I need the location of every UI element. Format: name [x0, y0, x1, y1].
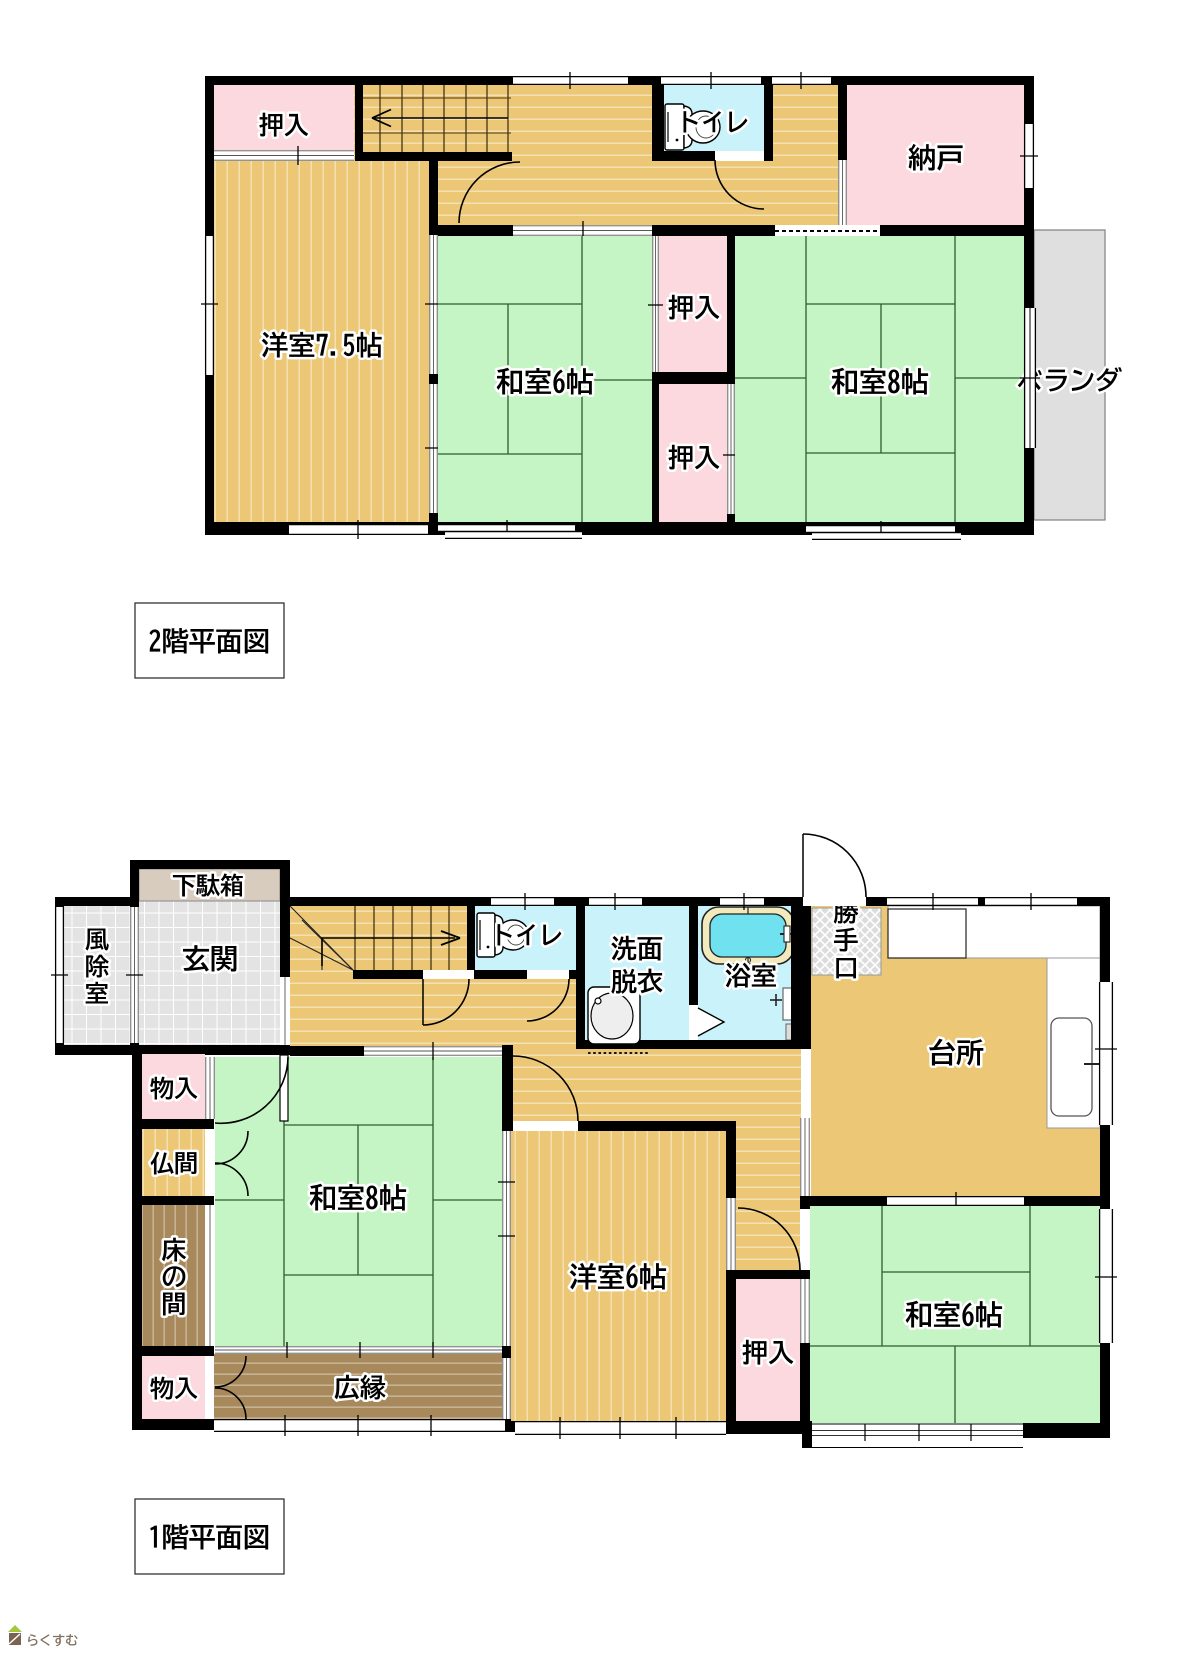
svg-text:トイレ: トイレ — [677, 110, 749, 134]
svg-text:広縁: 広縁 — [334, 1374, 386, 1401]
svg-text:押入: 押入 — [259, 112, 309, 138]
svg-text:洋室7.5帖: 洋室7.5帖 — [261, 331, 383, 359]
svg-text:物入: 物入 — [150, 1076, 198, 1100]
svg-text:1階平面図: 1階平面図 — [148, 1524, 270, 1551]
svg-text:トイレ: トイレ — [491, 923, 563, 947]
svg-text:手: 手 — [834, 927, 859, 953]
svg-text:洗面: 洗面 — [611, 935, 663, 962]
svg-text:室: 室 — [85, 981, 109, 1005]
svg-text:台所: 台所 — [928, 1038, 984, 1067]
svg-text:納戸: 納戸 — [908, 143, 964, 172]
svg-text:浴室: 浴室 — [725, 962, 777, 989]
svg-text:和室8帖: 和室8帖 — [831, 368, 929, 396]
svg-text:除: 除 — [85, 954, 109, 978]
svg-text:押入: 押入 — [668, 294, 720, 321]
svg-text:玄関: 玄関 — [182, 945, 238, 973]
svg-text:和室6帖: 和室6帖 — [905, 1301, 1003, 1329]
svg-text:2階平面図: 2階平面図 — [148, 628, 270, 655]
svg-text:間: 間 — [162, 1292, 187, 1317]
svg-text:仏間: 仏間 — [150, 1151, 198, 1175]
svg-text:口: 口 — [834, 956, 859, 981]
svg-text:らくすむ: らくすむ — [26, 1634, 78, 1647]
svg-text:和室8帖: 和室8帖 — [309, 1184, 407, 1212]
svg-text:和室6帖: 和室6帖 — [496, 368, 594, 396]
svg-text:押入: 押入 — [742, 1339, 794, 1366]
svg-text:風: 風 — [85, 927, 109, 951]
svg-text:押入: 押入 — [668, 444, 720, 471]
svg-text:の: の — [162, 1265, 187, 1290]
svg-text:脱衣: 脱衣 — [611, 968, 663, 995]
svg-text:物入: 物入 — [150, 1376, 198, 1400]
svg-text:洋室6帖: 洋室6帖 — [569, 1262, 667, 1291]
svg-text:下駄箱: 下駄箱 — [172, 873, 244, 897]
svg-text:床: 床 — [162, 1237, 187, 1263]
